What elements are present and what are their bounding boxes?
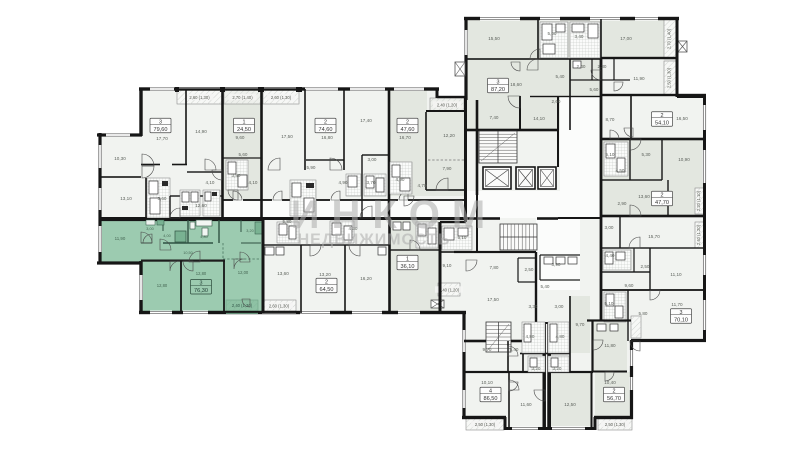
svg-text:11,90: 11,90: [633, 76, 645, 81]
svg-text:17,00: 17,00: [620, 36, 632, 41]
svg-text:2: 2: [661, 113, 664, 119]
svg-text:76,30: 76,30: [194, 288, 208, 294]
svg-text:11,60: 11,60: [520, 402, 532, 407]
svg-text:2: 2: [613, 388, 616, 394]
svg-text:2: 2: [324, 119, 327, 125]
svg-text:11,90: 11,90: [115, 236, 126, 241]
svg-text:13,60: 13,60: [277, 271, 289, 276]
svg-text:4,80: 4,80: [200, 235, 207, 239]
svg-text:3: 3: [497, 79, 500, 85]
svg-text:11,80: 11,80: [604, 343, 616, 348]
svg-text:4,90: 4,90: [339, 180, 348, 185]
svg-text:3: 3: [680, 310, 683, 316]
svg-text:3,90: 3,90: [552, 262, 561, 267]
svg-text:47,70: 47,70: [655, 200, 669, 206]
svg-text:12,80: 12,80: [157, 283, 168, 288]
svg-text:10,10: 10,10: [481, 380, 493, 385]
svg-text:5,40: 5,40: [541, 284, 550, 289]
svg-text:70,10: 70,10: [674, 317, 688, 323]
svg-text:2,30: 2,30: [598, 64, 607, 69]
svg-text:47,60: 47,60: [401, 127, 415, 133]
svg-text:2,60 (1,30): 2,60 (1,30): [271, 95, 292, 100]
svg-text:4,00: 4,00: [163, 234, 170, 238]
svg-text:3,40: 3,40: [575, 34, 584, 39]
svg-text:16,20: 16,20: [360, 276, 372, 281]
svg-text:2: 2: [661, 192, 664, 198]
svg-text:14,10: 14,10: [533, 116, 545, 121]
svg-text:4: 4: [489, 388, 492, 394]
svg-text:2,50: 2,50: [525, 267, 534, 272]
svg-text:5,00: 5,00: [548, 31, 557, 36]
svg-text:5,30: 5,30: [642, 152, 651, 157]
svg-text:13,20: 13,20: [319, 272, 331, 277]
svg-text:4,40: 4,40: [606, 253, 615, 258]
svg-text:8,70: 8,70: [606, 117, 615, 122]
svg-text:3,20: 3,20: [246, 229, 253, 233]
svg-text:5,10: 5,10: [606, 152, 615, 157]
svg-text:18,60: 18,60: [510, 82, 522, 87]
svg-text:16,80: 16,80: [321, 135, 333, 140]
svg-text:16,70: 16,70: [399, 135, 411, 140]
svg-text:3: 3: [159, 119, 162, 125]
svg-text:3,30: 3,30: [529, 304, 538, 309]
svg-text:17,70: 17,70: [156, 136, 168, 141]
svg-text:36,10: 36,10: [401, 264, 415, 270]
svg-text:3,00: 3,00: [555, 304, 564, 309]
svg-text:17,40: 17,40: [360, 118, 372, 123]
svg-text:ИНКОМ: ИНКОМ: [291, 193, 497, 237]
svg-text:НЕДВИЖИМОСТЬ: НЕДВИЖИМОСТЬ: [298, 232, 451, 249]
svg-text:2,50: 2,50: [641, 264, 650, 269]
svg-text:24,50: 24,50: [237, 127, 251, 133]
svg-text:14,90: 14,90: [195, 129, 207, 134]
svg-text:2: 2: [325, 279, 328, 285]
svg-text:5,60: 5,60: [590, 87, 599, 92]
svg-text:4,80: 4,80: [556, 334, 565, 339]
svg-text:9,70: 9,70: [576, 322, 585, 327]
svg-text:17,50: 17,50: [487, 297, 499, 302]
svg-text:2,40 (1,20): 2,40 (1,20): [696, 224, 701, 245]
svg-text:2,60 (1,30): 2,60 (1,30): [189, 95, 210, 100]
svg-text:9,60: 9,60: [625, 283, 634, 288]
svg-text:12,20: 12,20: [443, 133, 455, 138]
svg-text:4,70: 4,70: [418, 183, 427, 188]
svg-text:5,60: 5,60: [239, 152, 248, 157]
svg-text:2,20 (1,10): 2,20 (1,10): [696, 190, 701, 211]
svg-text:9,10: 9,10: [443, 263, 452, 268]
svg-text:7,90: 7,90: [443, 166, 452, 171]
svg-text:2,40 (1,20): 2,40 (1,20): [439, 287, 460, 292]
svg-text:2,40: 2,40: [577, 64, 586, 69]
svg-text:15,70: 15,70: [648, 234, 660, 239]
svg-text:10,30: 10,30: [114, 156, 126, 161]
svg-text:2,70 (1,40): 2,70 (1,40): [232, 95, 253, 100]
svg-text:2,50 (1,30): 2,50 (1,30): [605, 422, 626, 427]
svg-text:4,80: 4,80: [526, 334, 535, 339]
svg-text:4,10: 4,10: [249, 180, 258, 185]
svg-text:7,80: 7,80: [490, 265, 499, 270]
svg-text:64,50: 64,50: [320, 287, 334, 293]
svg-text:1: 1: [406, 256, 409, 262]
svg-text:5,10: 5,10: [605, 301, 614, 306]
svg-text:3,20: 3,20: [532, 366, 541, 371]
svg-text:10,40: 10,40: [604, 380, 616, 385]
svg-text:13,60: 13,60: [638, 194, 650, 199]
svg-text:74,60: 74,60: [319, 127, 333, 133]
svg-text:12,80: 12,80: [196, 271, 207, 276]
svg-text:17,50: 17,50: [281, 134, 293, 139]
svg-text:5,90: 5,90: [307, 165, 316, 170]
svg-text:12,50: 12,50: [564, 402, 576, 407]
svg-text:10,50: 10,50: [183, 251, 193, 255]
svg-text:4,10: 4,10: [206, 180, 215, 185]
svg-text:2: 2: [406, 119, 409, 125]
svg-text:2,60: 2,60: [552, 99, 561, 104]
svg-text:2,50 (1,30): 2,50 (1,30): [475, 422, 496, 427]
svg-text:5,60: 5,60: [158, 196, 167, 201]
svg-text:12,00: 12,00: [238, 270, 249, 275]
svg-text:15,50: 15,50: [488, 36, 500, 41]
svg-text:3,20: 3,20: [553, 366, 562, 371]
svg-text:2,40 (1,20): 2,40 (1,20): [437, 102, 458, 107]
svg-text:16,50: 16,50: [676, 116, 688, 121]
svg-text:56,70: 56,70: [607, 396, 621, 402]
svg-text:2,60 (1,30): 2,60 (1,30): [269, 303, 290, 308]
svg-text:9,70: 9,70: [483, 347, 492, 352]
svg-text:3,70: 3,70: [367, 180, 376, 185]
svg-text:11,10: 11,10: [670, 272, 682, 277]
svg-text:54,10: 54,10: [655, 120, 669, 126]
svg-text:87,20: 87,20: [491, 87, 505, 93]
svg-text:13,10: 13,10: [120, 196, 132, 201]
svg-text:9,60: 9,60: [236, 135, 245, 140]
svg-text:4,50: 4,50: [616, 168, 625, 173]
svg-text:3,00: 3,00: [146, 227, 153, 231]
svg-text:2,70 (1,40): 2,70 (1,40): [667, 28, 672, 49]
svg-text:11,70: 11,70: [671, 302, 683, 307]
svg-text:3: 3: [200, 281, 203, 287]
svg-text:5,80: 5,80: [639, 311, 648, 316]
svg-text:86,50: 86,50: [484, 396, 498, 402]
svg-text:3,00: 3,00: [605, 225, 614, 230]
svg-text:7,40: 7,40: [490, 115, 499, 120]
svg-text:5,40: 5,40: [510, 347, 519, 352]
svg-text:5,40: 5,40: [556, 74, 565, 79]
svg-text:2,90: 2,90: [618, 201, 627, 206]
svg-text:79,60: 79,60: [154, 127, 168, 133]
svg-text:10,90: 10,90: [678, 157, 690, 162]
svg-text:1: 1: [243, 119, 246, 125]
svg-text:3,80: 3,80: [232, 173, 241, 178]
svg-text:12,60: 12,60: [195, 203, 207, 208]
svg-text:2,50 (1,30): 2,50 (1,30): [667, 67, 672, 88]
svg-text:3,00: 3,00: [368, 157, 377, 162]
svg-text:4,90: 4,90: [396, 177, 405, 182]
